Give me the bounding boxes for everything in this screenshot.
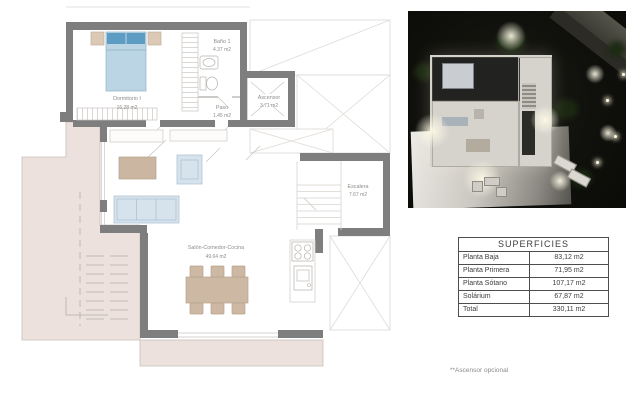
row-label: Planta Primera [459, 265, 530, 277]
table-row: Total 330,11 m2 [459, 303, 608, 316]
garden-light [622, 73, 625, 76]
wardrobe [182, 33, 198, 111]
render-3d [408, 11, 626, 208]
sofa [114, 196, 179, 223]
table-row: Planta Sótano 107,17 m2 [459, 277, 608, 290]
render-chair [474, 109, 484, 119]
area-escalera: 7.67 m2 [349, 192, 367, 198]
label-salon: Salón-Comedor-Cocina [188, 245, 244, 251]
row-value: 107,17 m2 [530, 278, 608, 290]
row-label: Planta Sótano [459, 278, 530, 290]
table-title: SUPERFICIES [459, 238, 608, 252]
stairs [297, 161, 341, 230]
row-label: Solárium [459, 291, 530, 303]
label-bano: Baño 1 [213, 39, 230, 45]
garden-light [614, 135, 617, 138]
nightstand [91, 32, 104, 45]
render-dining [466, 139, 490, 152]
terrace [22, 122, 323, 366]
table-row: Planta Baja 83,12 m2 [459, 252, 608, 264]
row-value: 83,12 m2 [530, 252, 608, 264]
light-glow [584, 63, 606, 85]
bedroom-furniture [77, 32, 198, 120]
footnote: **Ascensor opcional [450, 367, 508, 374]
tv-cabinet [110, 130, 163, 142]
light-glow [412, 111, 452, 151]
bathroom-fixtures [200, 56, 218, 90]
terrace-louvers [86, 250, 104, 324]
brochure-page: Dormitorio I 16.28 m2 Baño 1 4.37 m2 Pas… [0, 0, 630, 401]
nightstand [148, 32, 161, 45]
table-row: Solárium 67,87 m2 [459, 290, 608, 303]
row-label: Planta Baja [459, 252, 530, 264]
row-value: 71,95 m2 [530, 265, 608, 277]
light-glow [598, 123, 618, 143]
table-row: Planta Primera 71,95 m2 [459, 264, 608, 277]
area-salon: 49.64 m2 [206, 254, 227, 260]
dining-table [186, 277, 248, 303]
garden-light [606, 99, 609, 102]
area-paso: 1.45 m2 [213, 113, 231, 119]
sideboard [170, 130, 227, 141]
row-label: Total [459, 304, 530, 316]
floor-plan: Dormitorio I 16.28 m2 Baño 1 4.37 m2 Pas… [0, 0, 408, 401]
area-dormitorio: 16.28 m2 [117, 105, 138, 111]
area-ascensor: 3.71 m2 [260, 103, 278, 109]
superficies-table: SUPERFICIES Planta Baja 83,12 m2 Planta … [458, 237, 609, 317]
garden-light [596, 161, 599, 164]
render-stairs [522, 83, 536, 109]
render-bed [442, 63, 474, 89]
kitchen [290, 240, 315, 302]
area-bano: 4.37 m2 [213, 47, 231, 53]
label-paso: Paso [216, 105, 228, 111]
coffee-table [119, 157, 156, 179]
row-value: 330,11 m2 [530, 304, 608, 316]
row-value: 67,87 m2 [530, 291, 608, 303]
bush [608, 41, 626, 57]
light-glow [528, 103, 562, 137]
light-glow [494, 19, 528, 53]
outdoor-set [472, 177, 506, 195]
label-dormitorio: Dormitorio I [113, 96, 141, 102]
toilet [200, 77, 206, 90]
label-escalera: Escalera [348, 184, 369, 190]
label-ascensor: Ascensor [258, 95, 281, 101]
